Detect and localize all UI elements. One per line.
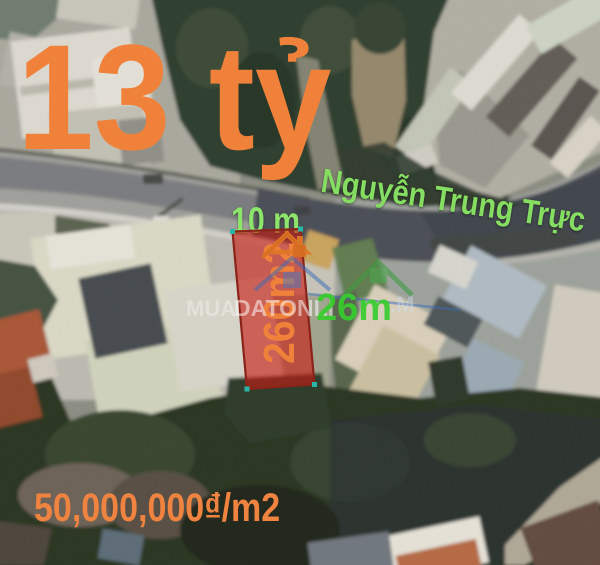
svg-text:.M: .M	[390, 292, 414, 317]
svg-text:MUA: MUA	[186, 296, 236, 321]
svg-text:26m: 26m	[316, 287, 392, 329]
